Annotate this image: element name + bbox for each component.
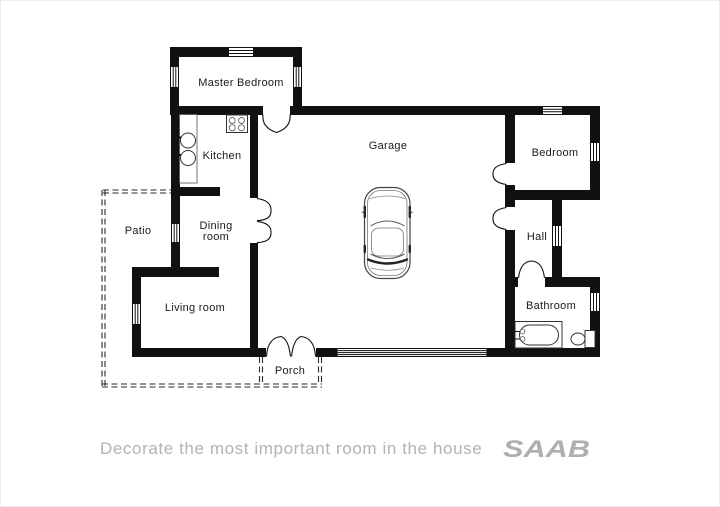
door-dining-to-garage-right-leaf: [257, 221, 271, 242]
door-master-bedroom-to-garage: [263, 115, 290, 133]
door-porch-left-leaf: [267, 337, 291, 357]
room-label-dining-room: Dining room: [200, 221, 233, 243]
room-label-living-room: Living room: [165, 303, 225, 314]
stove-icon: [227, 115, 248, 133]
door-dining-to-garage-left-leaf: [257, 199, 271, 221]
window-bedroom-top: [543, 107, 563, 115]
windows: [133, 48, 600, 325]
wall: [290, 106, 542, 115]
kitchen-counter: [180, 115, 198, 184]
wall: [132, 348, 266, 357]
room-label-bedroom: Bedroom: [532, 148, 579, 159]
door-hall-to-bathroom: [519, 261, 545, 278]
wall: [250, 106, 258, 198]
window-master-bedroom-right: [294, 67, 302, 88]
window-master-bedroom-left: [171, 67, 179, 88]
window-dining-west: [172, 224, 180, 243]
wall: [132, 267, 219, 277]
room-label-porch: Porch: [275, 366, 305, 377]
window-living-left: [133, 304, 141, 325]
car-icon: [362, 188, 413, 279]
bathtub-icon: [514, 322, 562, 349]
saab-print-ad: Master Bedroom Kitchen Dining room Patio…: [0, 0, 720, 507]
room-label-bathroom: Bathroom: [526, 301, 576, 312]
room-label-patio: Patio: [125, 226, 152, 237]
door-porch-right-leaf: [292, 337, 316, 357]
wall: [171, 187, 220, 196]
wall: [170, 106, 263, 115]
window-bedroom-right: [591, 143, 600, 162]
window-bathroom-right: [591, 293, 600, 312]
window-master-bedroom-top: [229, 48, 254, 57]
room-label-garage: Garage: [369, 141, 408, 152]
wall: [505, 277, 518, 287]
door-hall-to-garage: [493, 208, 507, 230]
room-label-kitchen: Kitchen: [203, 151, 242, 162]
door-bedroom-to-garage: [493, 164, 507, 185]
room-label-master-bedroom: Master Bedroom: [198, 78, 284, 89]
ad-tagline: Decorate the most important room in the …: [100, 439, 482, 459]
saab-logo: SAAB: [503, 436, 590, 464]
wall: [505, 106, 515, 163]
dining-label-line2: room: [200, 232, 233, 243]
garage-door: [337, 349, 487, 357]
wall: [250, 243, 258, 357]
wall: [505, 230, 515, 357]
toilet-icon: [571, 331, 595, 348]
window-hall-right: [553, 226, 562, 247]
floor-plan: [0, 0, 720, 507]
room-label-hall: Hall: [527, 232, 547, 243]
